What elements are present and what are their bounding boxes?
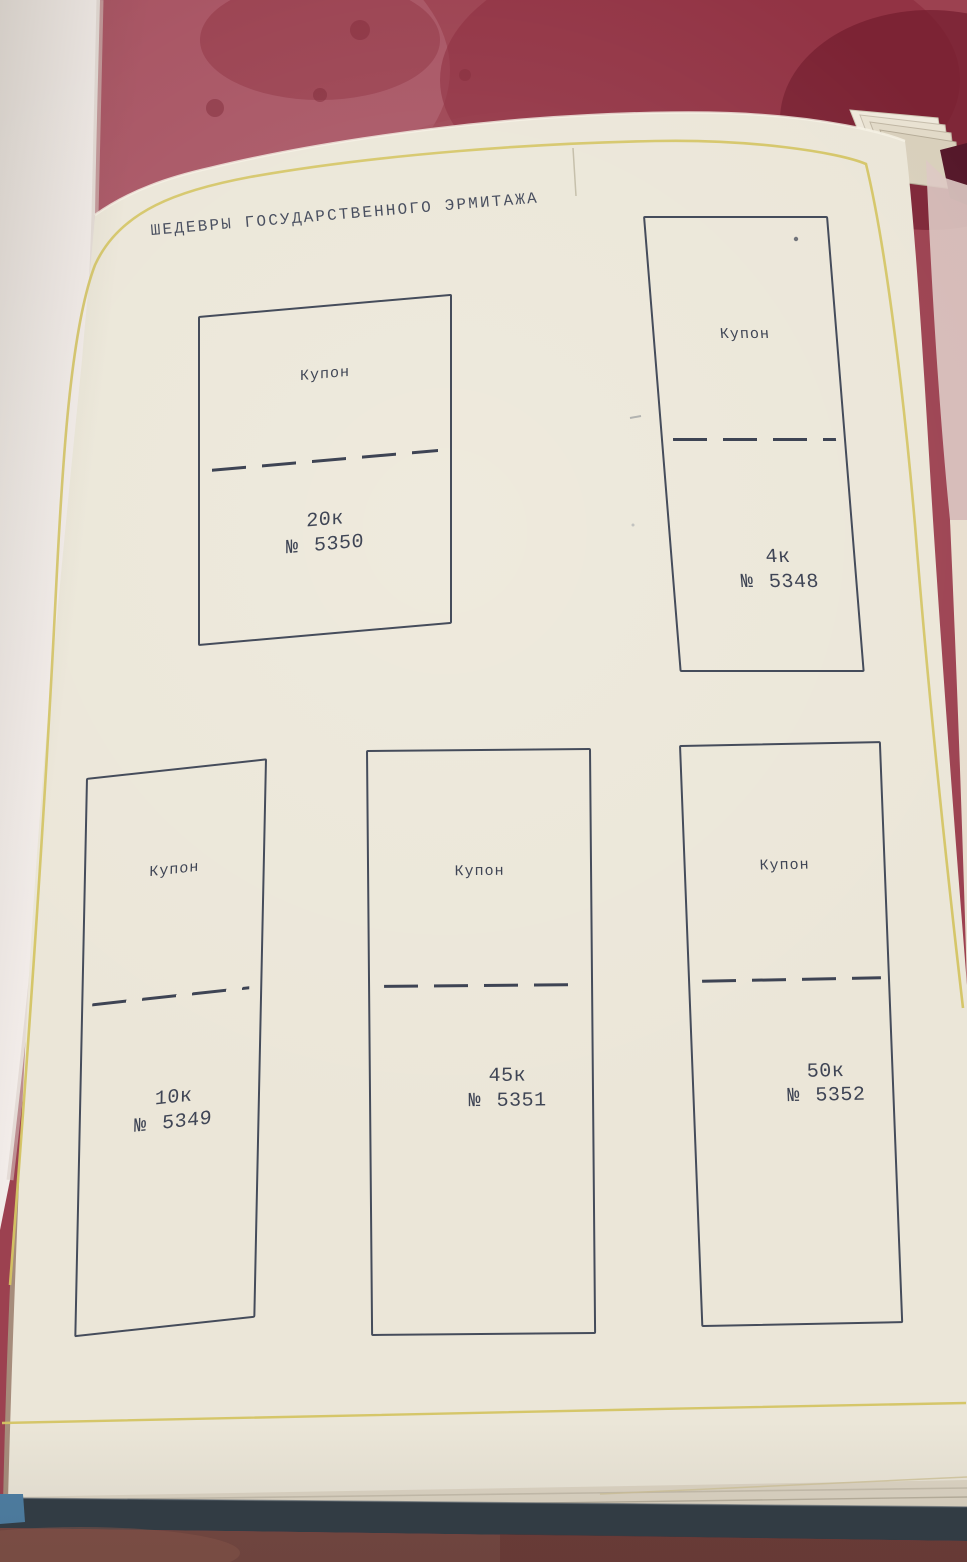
perforation-dash-line <box>384 983 579 988</box>
photo-stamp-album-page: ШЕДЕВРЫ ГОСУДАРСТВЕННОГО ЭРМИТАЖА Купон … <box>0 0 967 1562</box>
denomination: 50к <box>726 1058 925 1085</box>
perforation-dash-line <box>673 438 836 441</box>
coupon-label: Купон <box>200 355 450 394</box>
cloth-speck <box>206 99 224 117</box>
coupon-label: Купон <box>685 855 884 876</box>
denomination: 45к <box>397 1064 618 1089</box>
catalog-number: № 5348 <box>689 571 872 594</box>
coupon-label: Купон <box>654 326 836 343</box>
perforation-dash-line <box>92 987 249 1007</box>
cloth-speck <box>350 20 370 40</box>
coupon-slot-5349: Купон 10к № 5349 <box>74 758 267 1337</box>
coupon-slot-5348: Купон 4к № 5348 <box>643 216 865 672</box>
paper-speck <box>632 524 635 527</box>
coupon-slot-5350: Купон 20к № 5350 <box>198 294 452 646</box>
catalog-number: № 5351 <box>397 1089 618 1114</box>
cover-blue-patch <box>0 1494 25 1524</box>
denomination: 4к <box>687 546 870 569</box>
cloth-speck <box>459 69 471 81</box>
coupon-label: Купон <box>369 862 590 881</box>
coupon-label: Купон <box>86 852 263 888</box>
catalog-number: № 5352 <box>727 1082 926 1109</box>
coupon-slot-5352: Купон 50к № 5352 <box>679 741 903 1327</box>
coupon-slot-5351: Купон 45к № 5351 <box>366 748 596 1336</box>
perforation-dash-line <box>212 449 438 472</box>
perforation-dash-line <box>702 976 881 982</box>
cloth-speck <box>313 88 327 102</box>
